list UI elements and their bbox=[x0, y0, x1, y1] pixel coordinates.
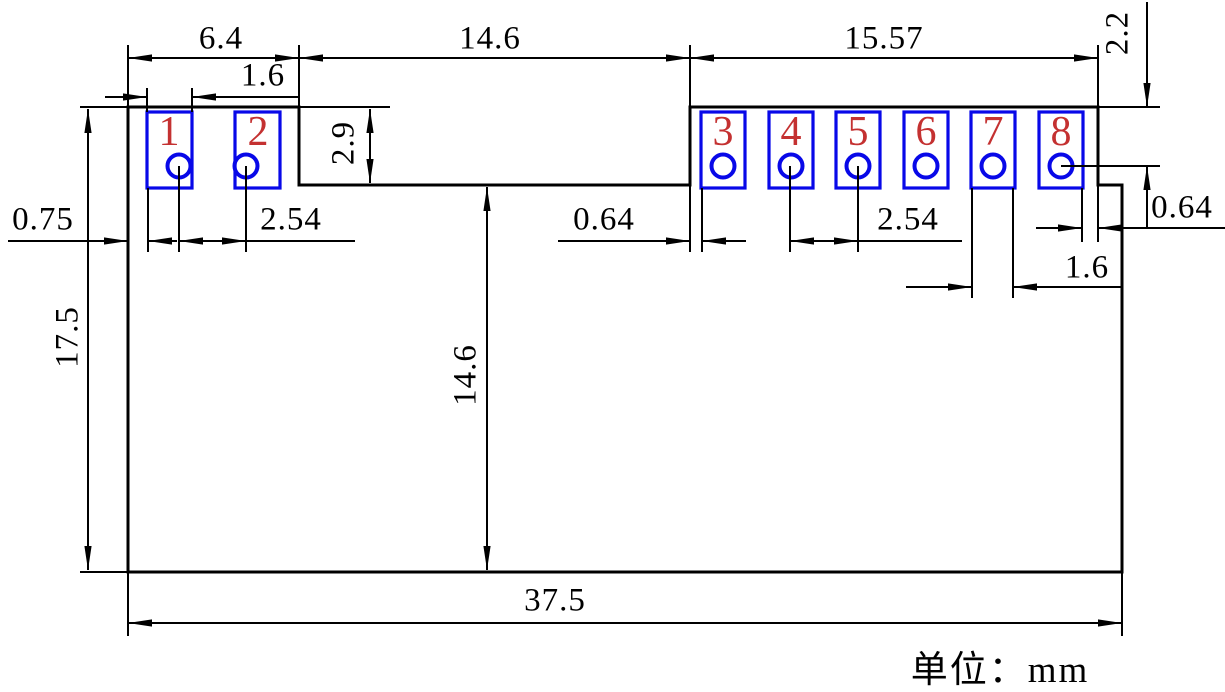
dim-label-pad7-width: 1.6 bbox=[1065, 252, 1109, 285]
dim-label-body-height: 17.5 bbox=[52, 306, 85, 368]
unit-note: 单位：mm bbox=[911, 639, 1090, 692]
pad-1-number: 1 bbox=[159, 111, 180, 153]
dim-label-right-pitch: 2.54 bbox=[877, 204, 939, 237]
pad-6-number: 6 bbox=[916, 111, 937, 153]
dim-label-left-edge-to-pad1: 0.75 bbox=[12, 204, 74, 237]
pad-4-number: 4 bbox=[781, 111, 802, 153]
dim-label-pad8-to-right-edge: 0.64 bbox=[1151, 192, 1213, 225]
pad-7-hole bbox=[982, 155, 1005, 178]
drawing-canvas bbox=[0, 0, 1225, 692]
dim-label-step-height: 2.9 bbox=[328, 121, 361, 165]
pad-6-hole bbox=[915, 155, 938, 178]
dimension-lines bbox=[8, 2, 1225, 623]
pad-5-number: 5 bbox=[848, 111, 869, 153]
body-outline bbox=[128, 107, 1122, 572]
dim-label-body-width: 37.5 bbox=[524, 585, 586, 618]
pad-3-hole bbox=[712, 155, 735, 178]
dim-label-right-block-width: 15.57 bbox=[844, 23, 923, 56]
dim-label-notch-depth: 14.6 bbox=[450, 344, 483, 406]
pads bbox=[147, 112, 1083, 188]
dim-label-hole-center-from-top: 2.2 bbox=[1102, 11, 1135, 55]
pad-7-number: 7 bbox=[983, 111, 1004, 153]
pad-8-number: 8 bbox=[1051, 111, 1072, 153]
dim-label-notch-to-pad3: 0.64 bbox=[573, 204, 635, 237]
pad-3-number: 3 bbox=[713, 111, 734, 153]
dim-label-left-pitch: 2.54 bbox=[260, 204, 322, 237]
dim-label-left-block-width: 6.4 bbox=[199, 23, 243, 56]
dim-label-notch-width-top: 14.6 bbox=[459, 23, 521, 56]
pad-2-number: 2 bbox=[248, 111, 269, 153]
dimension-drawing: 1 2 3 4 5 6 7 8 6.4 1.6 14.6 15.57 2.2 2… bbox=[0, 0, 1225, 692]
dim-label-pad1-width: 1.6 bbox=[241, 60, 285, 93]
